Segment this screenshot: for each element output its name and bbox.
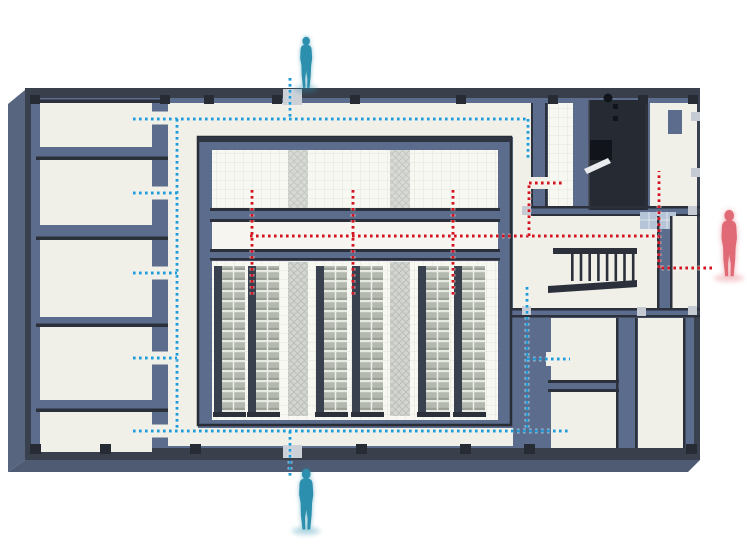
rack-row-side bbox=[418, 266, 426, 414]
wall-pier bbox=[30, 444, 41, 454]
wall-edge-line bbox=[616, 318, 619, 448]
stair-baluster bbox=[632, 253, 635, 281]
shaft-edge bbox=[588, 100, 590, 210]
stair-landing bbox=[513, 216, 658, 310]
wall-edge-line bbox=[511, 315, 700, 318]
north-corridor bbox=[168, 103, 513, 137]
person-shadow bbox=[294, 85, 318, 93]
wall-edge-line bbox=[36, 237, 168, 241]
right-mid-room bbox=[672, 216, 697, 310]
door-opening bbox=[151, 112, 169, 125]
door-opening bbox=[531, 177, 548, 189]
rack-row-side bbox=[214, 266, 222, 414]
wall-pier-block bbox=[691, 112, 700, 121]
wall-pier bbox=[356, 444, 367, 454]
wall-pier-block bbox=[688, 206, 697, 215]
person-figure bbox=[300, 37, 312, 88]
wall-pier bbox=[204, 95, 214, 104]
south-corridor bbox=[168, 428, 513, 446]
north-wall bbox=[25, 88, 700, 98]
person-shadow bbox=[714, 274, 745, 282]
rack-aisle-seam bbox=[437, 266, 439, 414]
wall-edge-line bbox=[36, 100, 168, 104]
wall-pier bbox=[100, 444, 111, 454]
mesh-floor-strip bbox=[390, 262, 410, 416]
stair-baluster bbox=[615, 253, 618, 281]
west-corridor bbox=[168, 103, 198, 446]
wall-pier bbox=[548, 95, 558, 104]
wall-edge-line bbox=[36, 409, 168, 413]
wall-edge-line bbox=[683, 318, 686, 448]
mesh-floor-strip bbox=[288, 262, 308, 416]
wall-edge-line bbox=[548, 389, 619, 392]
person-right bbox=[714, 210, 745, 282]
door-opening bbox=[151, 267, 169, 280]
rack-end-cap bbox=[247, 412, 280, 417]
wall-edge-line bbox=[36, 157, 168, 161]
rack-end-cap bbox=[315, 412, 348, 417]
wall-pier-block bbox=[688, 306, 697, 315]
wall-pier bbox=[524, 444, 535, 454]
rack-aisle-seam bbox=[267, 266, 269, 414]
door-opening bbox=[151, 352, 169, 365]
left-room-3 bbox=[40, 240, 152, 317]
wall-edge-line bbox=[531, 206, 700, 209]
right-bottom-room-1 bbox=[551, 318, 616, 380]
wall-pier bbox=[638, 95, 648, 104]
wall-edge-line bbox=[545, 103, 548, 208]
gallery-mesh-strip bbox=[288, 150, 308, 210]
wall-edge-line bbox=[670, 216, 673, 310]
elevator-panel bbox=[613, 116, 618, 121]
stair-baluster bbox=[597, 253, 600, 281]
south-entrance-opening bbox=[283, 445, 302, 458]
person-bottom bbox=[292, 469, 320, 535]
wall-pier-block bbox=[691, 168, 700, 177]
building-left-face bbox=[8, 90, 25, 472]
wall-pier bbox=[456, 95, 466, 104]
elevator-pit bbox=[590, 140, 612, 160]
wall-edge-line bbox=[645, 100, 648, 210]
stair-baluster bbox=[623, 253, 626, 281]
gallery-room bbox=[212, 150, 498, 210]
wall-pier bbox=[688, 95, 698, 104]
person-shadow bbox=[292, 527, 320, 535]
building-bottom-face bbox=[8, 460, 700, 472]
rack-aisle-seam bbox=[473, 266, 475, 414]
rack-end-cap bbox=[453, 412, 486, 417]
door-opening bbox=[151, 187, 169, 200]
wall-pier bbox=[30, 95, 40, 104]
rack-row-side bbox=[316, 266, 324, 414]
screenshot-root bbox=[0, 0, 747, 560]
rack-end-cap bbox=[351, 412, 384, 417]
stair-baluster bbox=[606, 253, 609, 281]
person-figure bbox=[721, 210, 737, 276]
person-top bbox=[294, 37, 318, 93]
west-wall bbox=[25, 88, 31, 460]
rack-aisle-seam bbox=[233, 266, 235, 414]
shaft-column bbox=[604, 94, 613, 103]
rack-aisle-seam bbox=[371, 266, 373, 414]
left-room-4 bbox=[40, 327, 152, 400]
wall-pier bbox=[272, 95, 282, 104]
wall-pier-block bbox=[637, 307, 646, 316]
wall-edge-line bbox=[511, 308, 700, 311]
wall-edge-line bbox=[36, 324, 168, 328]
stair-baluster bbox=[580, 253, 583, 281]
wall-pier bbox=[160, 95, 170, 104]
rack-aisle-seam bbox=[335, 266, 337, 414]
data-hall-north-cap bbox=[198, 137, 511, 142]
rack-end-cap bbox=[213, 412, 246, 417]
wall-pier bbox=[190, 444, 201, 454]
person-figure bbox=[299, 469, 313, 530]
left-room-1 bbox=[40, 103, 152, 147]
wall-pier bbox=[686, 444, 697, 454]
door-opening bbox=[151, 425, 169, 438]
stair-baluster bbox=[588, 253, 591, 281]
room-column bbox=[668, 110, 682, 134]
rack-end-cap bbox=[417, 412, 450, 417]
tiled-room bbox=[548, 103, 573, 208]
wall-pier bbox=[460, 444, 471, 454]
elevator-panel bbox=[613, 104, 618, 109]
wall-pier bbox=[350, 95, 360, 104]
gallery-mesh-strip bbox=[390, 150, 410, 210]
right-bottom-room-3 bbox=[638, 318, 683, 448]
floorplan-diagram bbox=[0, 0, 747, 560]
stair-baluster bbox=[571, 253, 574, 281]
wall-edge-line bbox=[635, 318, 638, 448]
right-bottom-room-2 bbox=[551, 392, 616, 448]
wall-edge-line bbox=[548, 380, 619, 383]
